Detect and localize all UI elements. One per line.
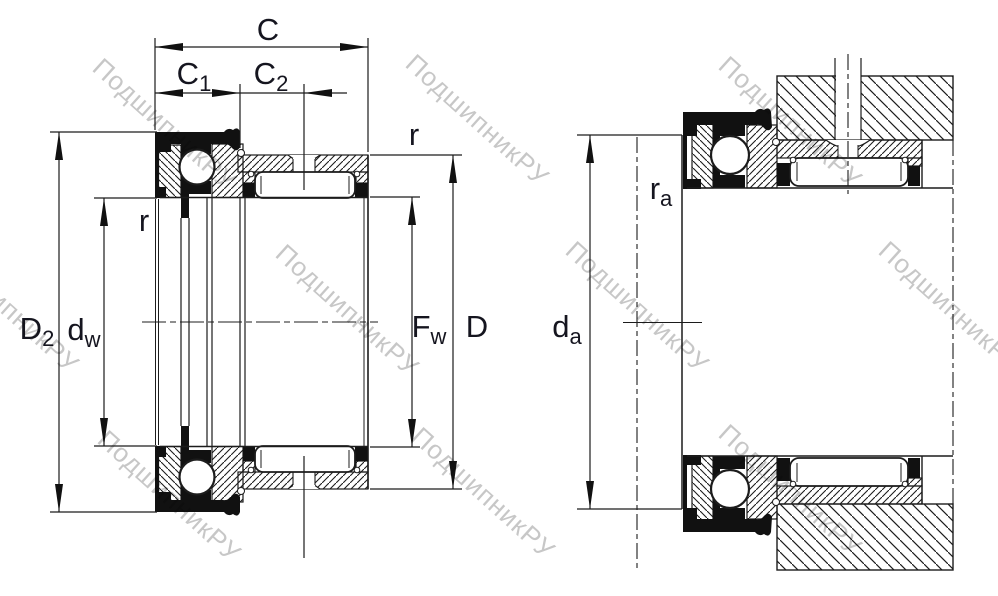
- label-ra: ra: [650, 171, 673, 211]
- needle-cage-end: [243, 183, 255, 198]
- label-da: da: [552, 309, 582, 349]
- label-r-outer: r: [409, 117, 419, 152]
- rolling-elements-right: [711, 136, 908, 508]
- bearing-drawing-page: { "watermark": { "text": "ПодшипникРУ" }…: [0, 0, 998, 596]
- dimension-arrows: [55, 43, 594, 512]
- housing-block-bottom: [777, 504, 953, 570]
- label-c: C: [257, 12, 279, 47]
- label-c1: C1: [177, 56, 212, 96]
- label-d: D: [466, 309, 488, 344]
- label-c2: C2: [254, 56, 289, 96]
- housing-block-top: [777, 76, 953, 140]
- needle-roller: [255, 172, 355, 198]
- fillet-radius-mark: [238, 150, 245, 157]
- shaft-outline: [682, 135, 953, 509]
- left-view-bearing-section: [142, 128, 378, 515]
- ball-element: [180, 150, 215, 185]
- bearing-technical-drawing: C C1 C2 r r D2 dw Fw D da ra: [0, 0, 998, 596]
- label-fw: Fw: [412, 309, 447, 349]
- label-dw: dw: [67, 312, 100, 352]
- label-r-left: r: [139, 203, 149, 238]
- label-d2: D2: [20, 311, 55, 351]
- right-view-mounting-section: [623, 54, 953, 570]
